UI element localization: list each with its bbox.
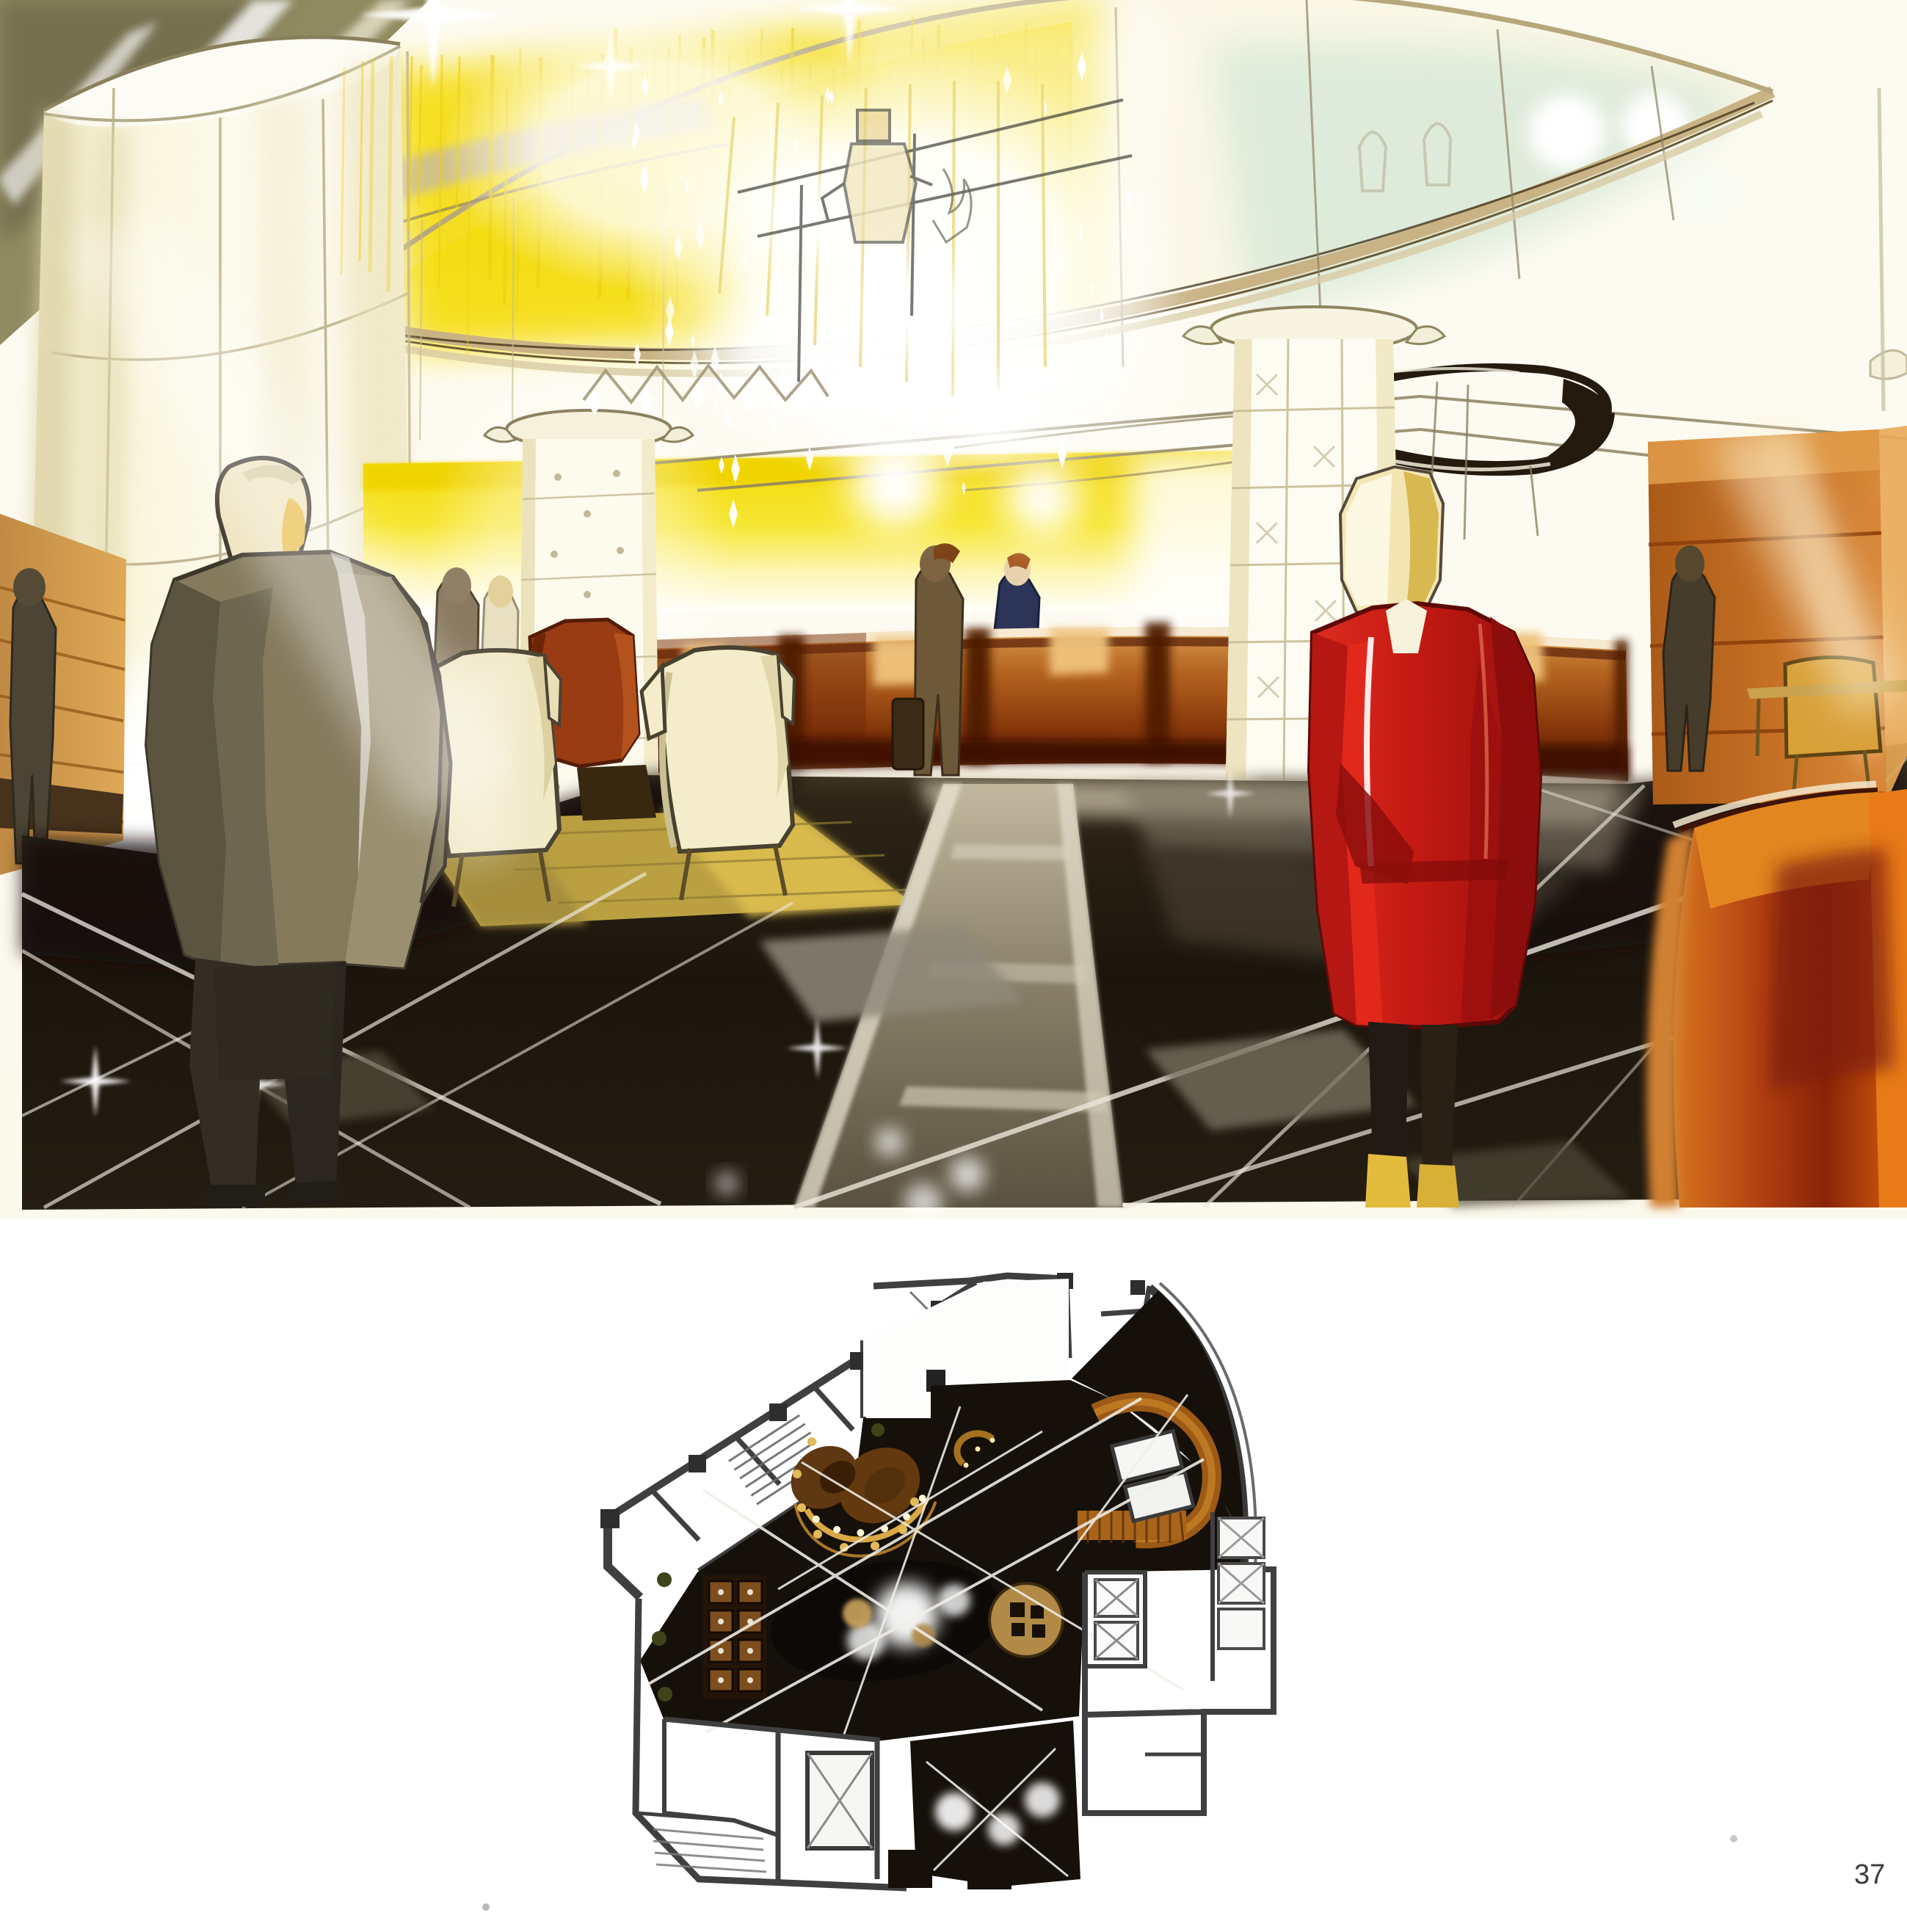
svg-text:37: 37 bbox=[1854, 1859, 1885, 1890]
